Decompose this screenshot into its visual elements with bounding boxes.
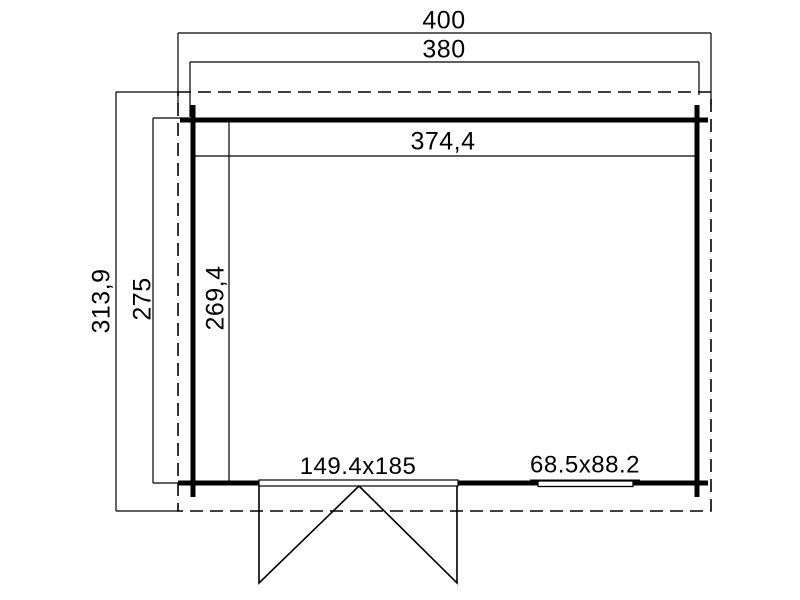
dim-wall-width-label: 380 [422, 38, 465, 63]
dim-roof-width-label: 400 [422, 9, 465, 34]
door-threshold [259, 480, 458, 486]
window-size-label: 68.5x88.2 [530, 454, 640, 481]
floor-plan-canvas: 400 380 374,4 313,9 275 269,4 149.4x185 … [0, 0, 800, 600]
window-frame [538, 481, 633, 487]
dim-roof-depth-label: 313,9 [90, 268, 115, 333]
door-leaves [259, 486, 457, 583]
dim-inner-depth-label: 269,4 [204, 265, 229, 330]
dim-line-wall-width [190, 62, 699, 117]
dim-wall-depth-label: 275 [131, 277, 156, 320]
door-size-label: 149.4x185 [300, 455, 417, 479]
dim-line-wall-depth [153, 118, 189, 483]
dim-inner-width-label: 374,4 [410, 130, 475, 155]
floor-plan-drawing [0, 0, 800, 600]
